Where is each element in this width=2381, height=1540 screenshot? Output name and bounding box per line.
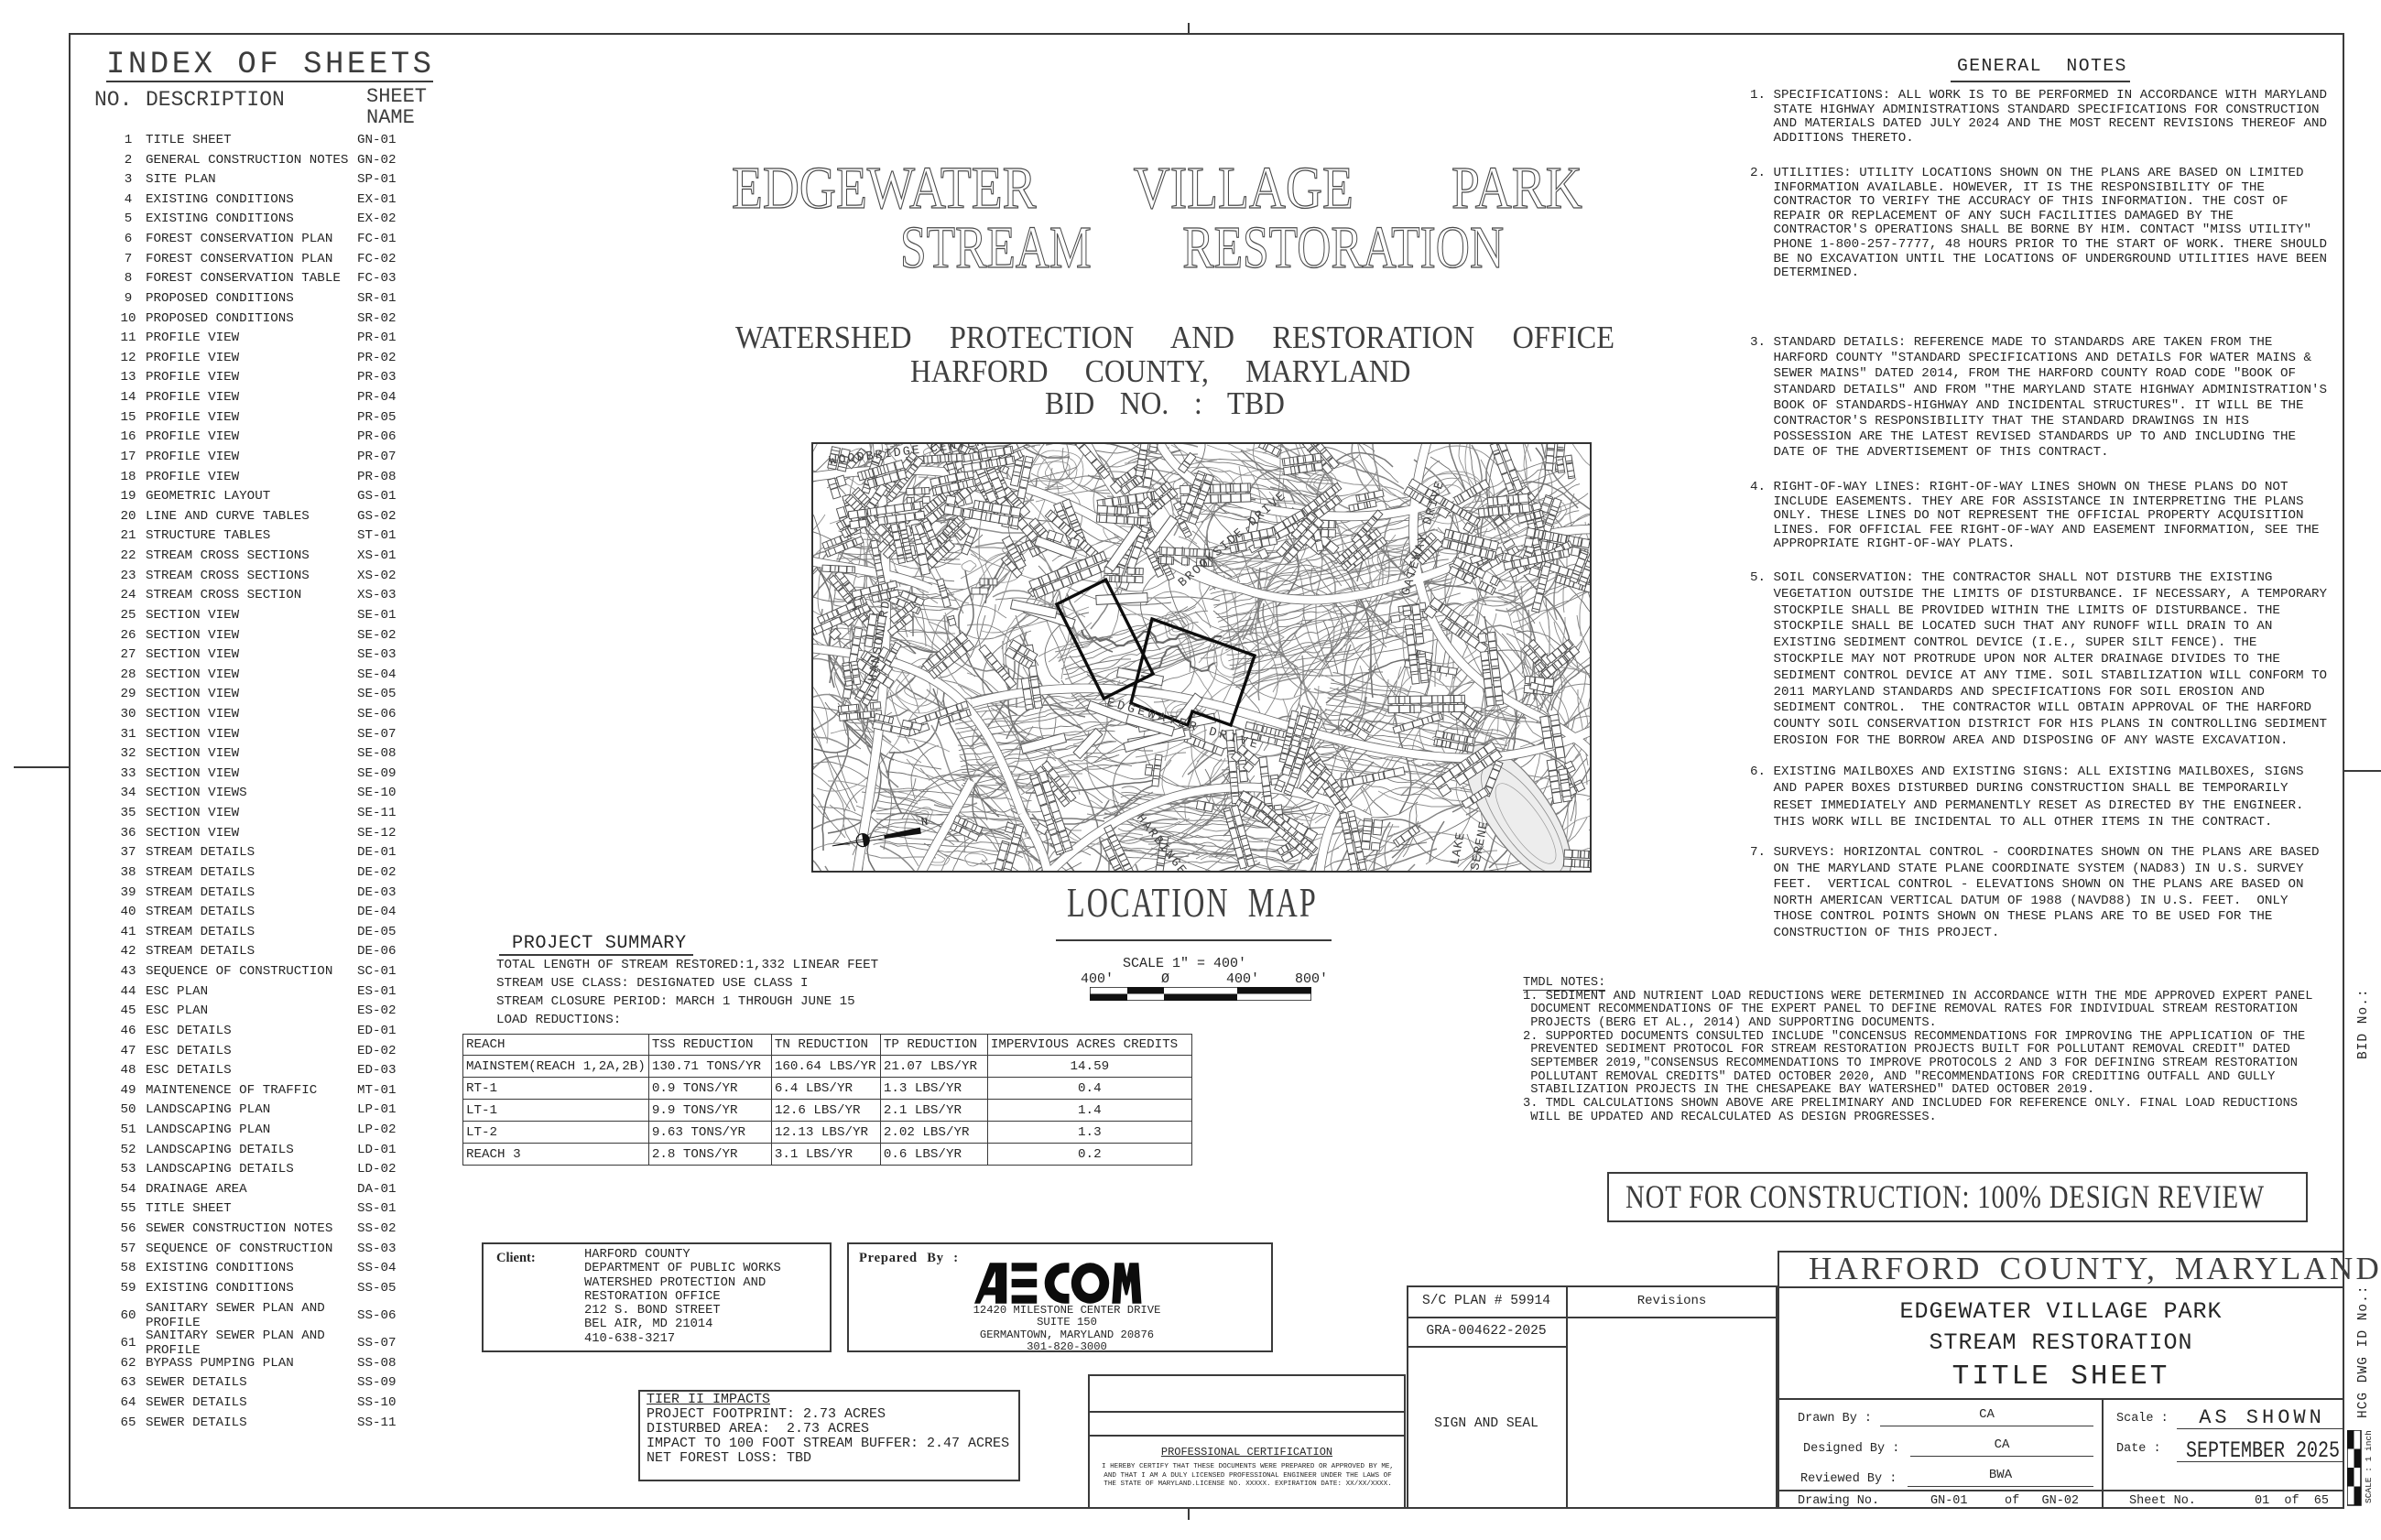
svg-text:HCG DWG ID No.:: HCG DWG ID No.: <box>2356 1285 2371 1418</box>
svg-text:SCALE : 1 inch: SCALE : 1 inch <box>2364 1430 2374 1503</box>
svg-text:BID No.:: BID No.: <box>2356 988 2371 1059</box>
